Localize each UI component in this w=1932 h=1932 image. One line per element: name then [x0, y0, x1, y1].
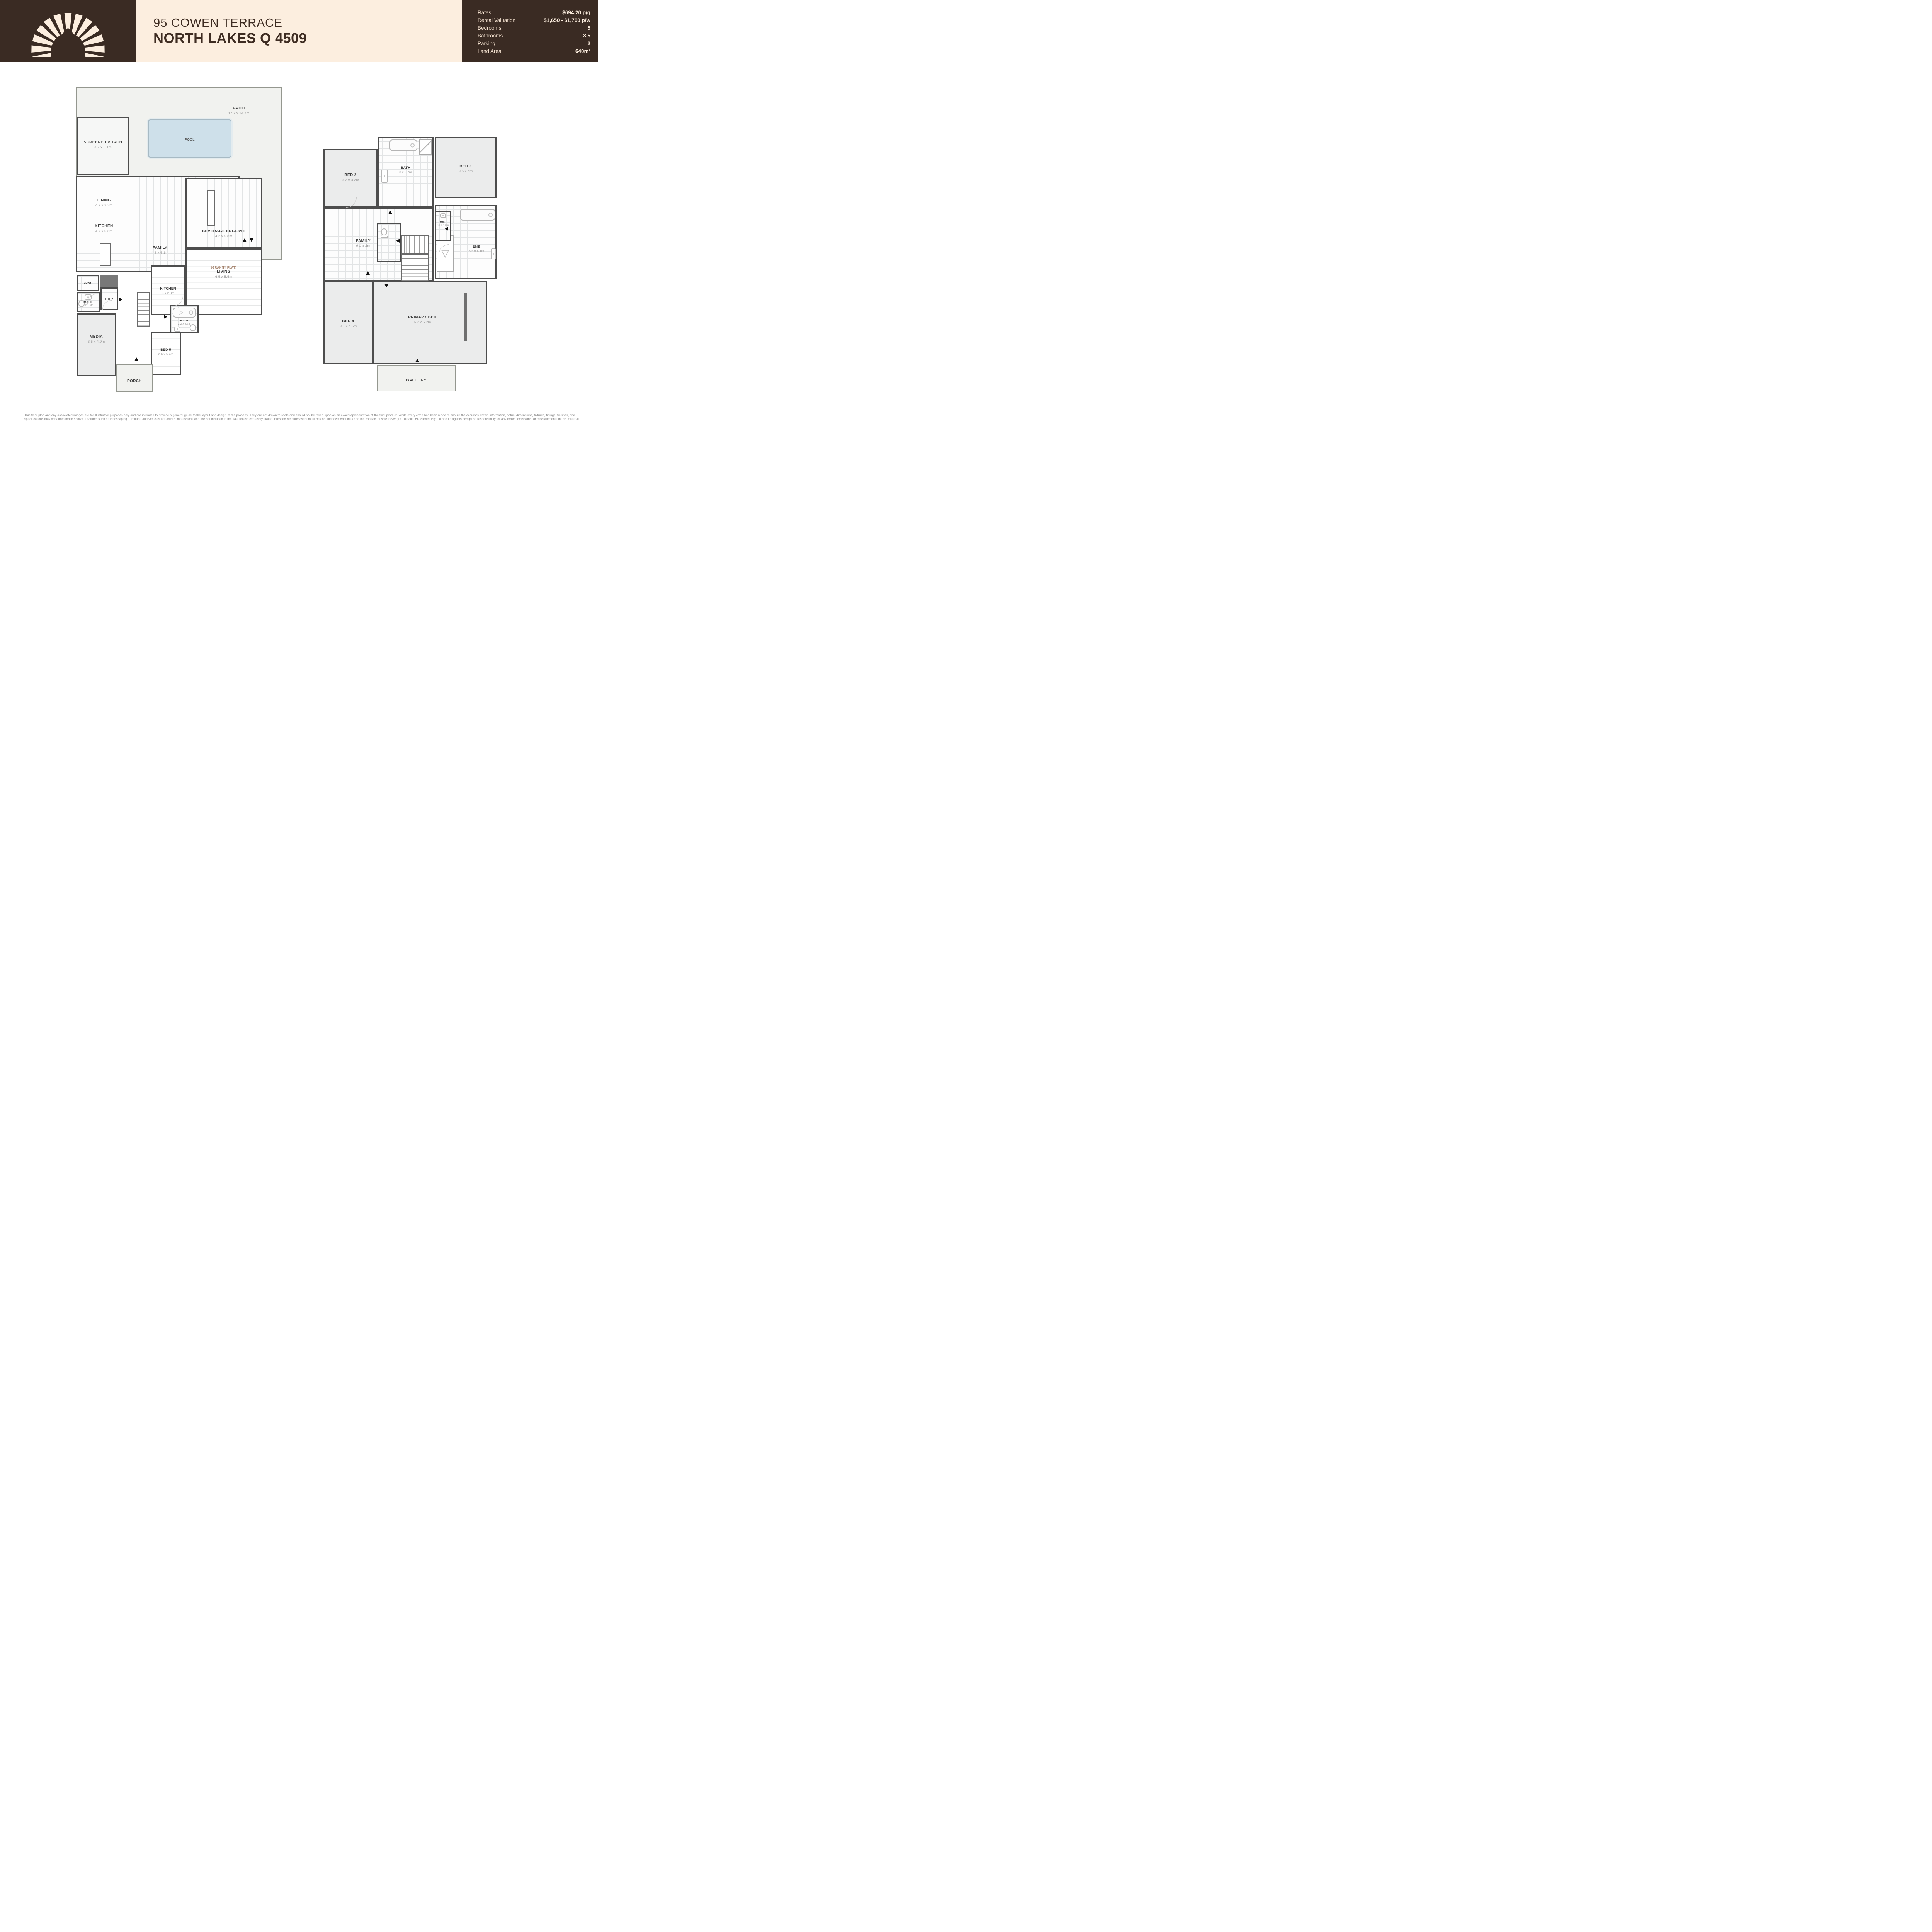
detail-row-rental: Rental Valuation $1,650 - $1,700 p/w: [478, 17, 590, 24]
detail-label: Bedrooms: [478, 24, 502, 32]
room-label: LDRY: [78, 281, 98, 284]
detail-row-rates: Rates $694.20 p/q: [478, 9, 590, 17]
door-arrow-icon: [388, 211, 392, 214]
room-label: MEDIA: [78, 335, 115, 339]
room-dims: 17.7 x 14.7m: [204, 111, 274, 116]
room-powder: [377, 223, 401, 262]
door-arrow-icon: [243, 238, 247, 242]
room-bath-upper: BATH 3 x 2.7m: [378, 137, 434, 207]
room-wc: WC 0.9 x 1.8m: [435, 211, 451, 241]
door-swing: [102, 300, 112, 310]
beverage-bench: [207, 190, 215, 226]
upper-floor-plan: BED 2 3.2 x 3.2m BATH 3 x 2.7m BED 3 3.5…: [323, 135, 497, 392]
room-ptry: PTRY: [100, 287, 118, 310]
room-label: LIVING: [187, 270, 261, 274]
page-title: 95 COWEN TERRACE NORTH LAKES Q 4509: [153, 15, 307, 46]
address-line: 95 COWEN TERRACE: [153, 15, 307, 30]
room-dims: 0.9 x 1.8m: [436, 224, 450, 227]
room-label: BEVERAGE ENCLAVE: [187, 229, 261, 233]
room-bed5: BED 5 2.6 x 5.4m: [151, 332, 181, 375]
floorplan-page: 95 COWEN TERRACE NORTH LAKES Q 4509 N Ra…: [0, 0, 598, 422]
detail-value: $1,650 - $1,700 p/w: [544, 17, 590, 24]
detail-row-land-area: Land Area 640m²: [478, 48, 590, 55]
room-porch: PORCH: [116, 364, 153, 392]
detail-row-bathrooms: Bathrooms 3.5: [478, 32, 590, 40]
kitchen-island-bench: [100, 243, 111, 266]
room-label: PORCH: [117, 379, 152, 383]
detail-label: Land Area: [478, 48, 502, 55]
sink-icon: [440, 213, 446, 218]
room-label: BALCONY: [378, 378, 455, 383]
shower-tray-icon: ▷: [173, 308, 196, 318]
room-dims: 4.8 x 5.1m: [135, 251, 185, 255]
detail-label: Rates: [478, 9, 491, 17]
room-dims: 3.5 x 4m: [436, 169, 495, 173]
room-dims: 4.7 x 5.8m: [81, 229, 127, 233]
stair-balustrade: [401, 235, 429, 254]
room-label: BED 5: [152, 348, 180, 352]
granny-flat-tag: (GRANNY FLAT): [187, 266, 261, 269]
header-title-panel: 95 COWEN TERRACE NORTH LAKES Q 4509 N: [136, 0, 462, 62]
room-dims: 3.5 x 4.9m: [78, 340, 115, 344]
disclaimer-text: This floor plan and any associated image…: [24, 413, 583, 422]
door-arrow-icon: [134, 357, 138, 361]
room-bed3: BED 3 3.5 x 4m: [435, 137, 497, 198]
wall-block: [100, 275, 118, 287]
room-label: DINING: [81, 198, 127, 202]
suburb-line: NORTH LAKES Q 4509: [153, 30, 307, 46]
room-label: BATH: [379, 166, 432, 170]
staircase: [137, 292, 150, 327]
room-label: BED 2: [325, 173, 376, 177]
detail-value: $694.20 p/q: [562, 9, 590, 17]
room-label: FAMILY: [135, 246, 185, 250]
header-details-panel: Rates $694.20 p/q Rental Valuation $1,65…: [462, 0, 598, 62]
detail-row-parking: Parking 2: [478, 40, 590, 48]
detail-row-bedrooms: Bedrooms 5: [478, 24, 590, 32]
room-label: PATIO: [204, 106, 274, 111]
room-beverage-enclave: BEVERAGE ENCLAVE 4.2 x 5.8m: [185, 178, 262, 248]
toilet-icon: [190, 324, 196, 331]
wardrobe-icon: [464, 293, 467, 341]
sink-icon: [381, 170, 388, 183]
detail-label: Parking: [478, 40, 495, 48]
detail-value: 3.5: [583, 32, 590, 40]
room-label: BATH: [171, 319, 197, 322]
bathtub-icon: [389, 139, 417, 151]
detail-label: Bathrooms: [478, 32, 503, 40]
room-label: ENS: [457, 245, 496, 248]
room-label: BED 3: [436, 164, 495, 168]
door-arrow-icon: [384, 284, 388, 287]
sunburst-house-logo-icon: [31, 6, 105, 57]
room-ldry: LDRY: [77, 275, 99, 291]
door-arrow-icon: [415, 359, 419, 362]
bathtub-icon: [460, 209, 495, 221]
pool: POOL: [148, 119, 231, 158]
room-screened-porch: SCREENED PORCH 4.7 x 5.1m: [77, 117, 129, 175]
room-dims: 2.6 x 5.4m: [152, 352, 180, 356]
toilet-icon: [78, 300, 85, 307]
property-details-list: Rates $694.20 p/q Rental Valuation $1,65…: [478, 9, 590, 55]
room-label: KITCHEN: [152, 287, 184, 291]
room-label: BED 4: [325, 319, 372, 323]
door-arrow-icon: [445, 227, 448, 231]
shower-icon: [419, 139, 432, 155]
room-dims: 3.1 x 4.6m: [325, 324, 372, 328]
header-logo-panel: [0, 0, 136, 62]
ground-floor-plan: PATIO 17.7 x 14.7m POOL SCREENED PORCH 4…: [76, 87, 283, 393]
room-granny-bath: ▷ BATH 2.2 x 2.2m: [170, 305, 199, 333]
room-dims: 4.7 x 5.1m: [78, 145, 128, 150]
sink-icon: [491, 248, 496, 259]
door-arrow-icon: [119, 298, 122, 301]
sink-icon: [174, 327, 180, 332]
detail-value: 5: [587, 24, 590, 32]
toilet-icon: [381, 228, 388, 238]
pool-label: POOL: [185, 138, 195, 141]
room-label: KITCHEN: [81, 224, 127, 228]
door-arrow-icon: [396, 239, 400, 243]
room-dims: 3.5 x 4.1m: [457, 249, 496, 253]
room-bed4: BED 4 3.1 x 4.6m: [323, 281, 373, 364]
room-dims: 3 x 2.3m: [152, 291, 184, 295]
room-dims: 4.2 x 5.8m: [187, 234, 261, 238]
room-dims: 3.2 x 3.2m: [325, 178, 376, 182]
room-balcony: BALCONY: [377, 365, 456, 391]
room-media: MEDIA 3.5 x 4.9m: [77, 313, 116, 376]
room-label: SCREENED PORCH: [78, 140, 128, 145]
room-dims: 6.5 x 5.5m: [187, 275, 261, 279]
detail-value: 640m²: [575, 48, 590, 55]
room-dims: 6.2 x 5.2m: [399, 320, 446, 325]
room-label: PRIMARY BED: [399, 315, 446, 320]
door-arrow-icon: [164, 315, 167, 319]
door-arrow-icon: [366, 271, 370, 275]
room-label: WC: [436, 220, 450, 224]
room-primary-bed: PRIMARY BED 6.2 x 5.2m: [373, 281, 487, 364]
detail-label: Rental Valuation: [478, 17, 515, 24]
room-dims: 4.7 x 3.3m: [81, 203, 127, 207]
door-arrow-icon: [250, 238, 253, 242]
detail-value: 2: [587, 40, 590, 48]
